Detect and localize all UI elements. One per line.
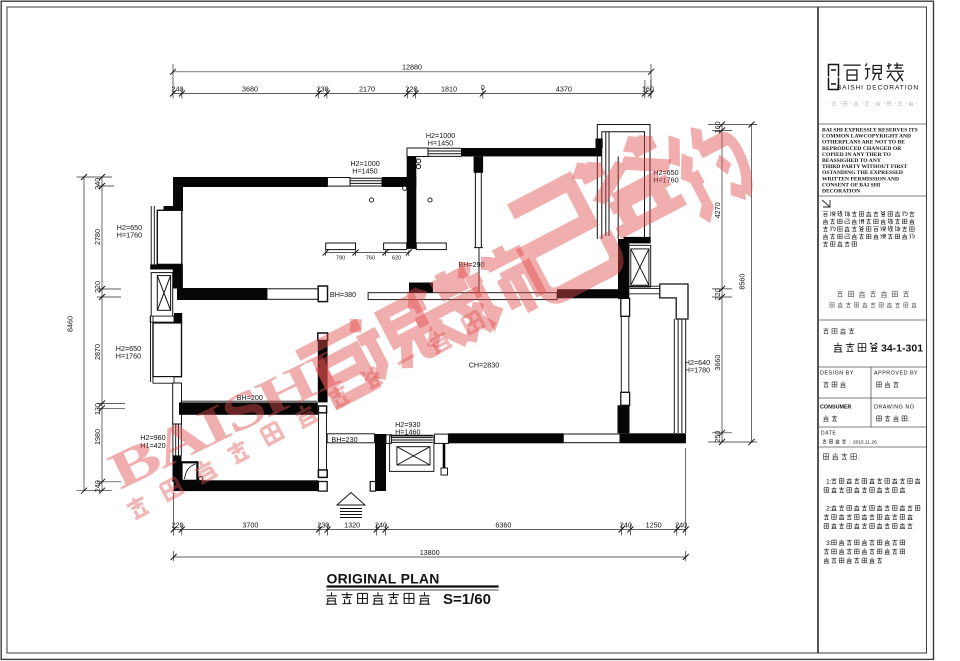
svg-text:BAI SHI EXPRESSLY RESERVES ITS: BAI SHI EXPRESSLY RESERVES ITS [822, 128, 918, 134]
svg-text:790: 790 [336, 256, 345, 262]
svg-text:4370: 4370 [556, 85, 572, 94]
svg-text:4270: 4270 [713, 202, 722, 218]
svg-text:S=1/60: S=1/60 [443, 591, 491, 608]
svg-text:H=1460: H=1460 [395, 427, 420, 436]
svg-text:160: 160 [642, 85, 654, 94]
svg-text:·: · [851, 101, 852, 106]
svg-text:OTHERPLANS ARE NOT TO BE: OTHERPLANS ARE NOT TO BE [822, 140, 905, 146]
svg-text:COPIED IN ANY THER TO: COPIED IN ANY THER TO [822, 152, 891, 158]
svg-text:COMMON LAWCOPYRIGHT AND: COMMON LAWCOPYRIGHT AND [822, 134, 911, 140]
svg-text:2:: 2: [826, 506, 832, 513]
svg-text:3700: 3700 [242, 521, 258, 530]
svg-text:·: · [829, 101, 830, 106]
svg-text:240: 240 [172, 85, 184, 94]
svg-text:H=1450: H=1450 [352, 167, 377, 176]
svg-text:1:: 1: [826, 479, 832, 486]
svg-text:WRITTEN PERMISSION AND: WRITTEN PERMISSION AND [822, 176, 899, 182]
svg-text:8460: 8460 [66, 316, 75, 332]
svg-text:6360: 6360 [495, 521, 511, 530]
svg-text:H=1780: H=1780 [685, 366, 710, 375]
svg-text:H=1760: H=1760 [117, 231, 142, 240]
svg-text:34-1-301: 34-1-301 [881, 343, 923, 355]
svg-text:BH=380: BH=380 [330, 290, 356, 299]
svg-text:620: 620 [392, 256, 401, 262]
svg-text:230: 230 [317, 521, 329, 530]
svg-text:220: 220 [172, 521, 184, 530]
svg-text:THIRD PARTY WITHOUT FIRST: THIRD PARTY WITHOUT FIRST [822, 164, 907, 170]
svg-text:1810: 1810 [441, 85, 457, 94]
svg-text:ORIGINAL PLAN: ORIGINAL PLAN [327, 571, 440, 587]
svg-text:CONSUMER: CONSUMER [820, 405, 852, 411]
svg-text:3680: 3680 [242, 85, 258, 94]
svg-text:0: 0 [481, 83, 485, 92]
svg-text:REPRODUCED CHANGED OR: REPRODUCED CHANGED OR [822, 146, 902, 152]
svg-text:2170: 2170 [359, 85, 375, 94]
svg-text:130: 130 [93, 403, 102, 415]
svg-text:240: 240 [675, 521, 687, 530]
svg-text:1250: 1250 [646, 521, 662, 530]
svg-text:: 2015.11.26: : 2015.11.26 [849, 440, 877, 446]
svg-text:DESIGN BY: DESIGN BY [820, 371, 854, 377]
svg-text:DRAWING NO: DRAWING NO [874, 405, 914, 411]
svg-text:·: · [895, 101, 896, 106]
svg-text:240: 240 [375, 521, 387, 530]
svg-text:2870: 2870 [93, 344, 102, 360]
svg-text:240: 240 [93, 178, 102, 190]
svg-text::: : [908, 417, 910, 423]
svg-text:3660: 3660 [713, 355, 722, 371]
svg-text:DATE: DATE [821, 431, 836, 437]
svg-text:240: 240 [620, 521, 632, 530]
svg-text:1980: 1980 [93, 429, 102, 445]
svg-text:2780: 2780 [93, 229, 102, 245]
svg-text:760: 760 [366, 256, 375, 262]
svg-text:H=1450: H=1450 [428, 139, 453, 148]
svg-text:·: · [840, 101, 841, 106]
svg-text:160: 160 [713, 121, 722, 133]
svg-text:BAISHI: BAISHI [100, 340, 348, 501]
svg-text:1320: 1320 [344, 521, 360, 530]
svg-text:·: · [916, 101, 917, 106]
svg-text:APPROVED BY: APPROVED BY [874, 371, 918, 377]
svg-text:220: 220 [93, 281, 102, 293]
svg-text:CONSENT OF BAI SHI: CONSENT OF BAI SHI [822, 182, 880, 188]
svg-text:230: 230 [317, 85, 329, 94]
svg-text:BH=230: BH=230 [331, 435, 357, 444]
svg-text:OSTANDING THE EXPRESSED: OSTANDING THE EXPRESSED [822, 170, 903, 176]
svg-text:H=1760: H=1760 [116, 352, 141, 361]
svg-text:BAISHI DECORATION: BAISHI DECORATION [837, 85, 919, 92]
svg-text:8560: 8560 [738, 274, 747, 290]
svg-text:220: 220 [406, 85, 418, 94]
svg-text:220: 220 [713, 288, 722, 300]
svg-text:240: 240 [93, 480, 102, 492]
svg-text:·: · [906, 101, 907, 106]
svg-text:DECORATION: DECORATION [822, 189, 860, 195]
svg-text:250: 250 [713, 431, 722, 443]
svg-text:·: · [884, 101, 885, 106]
svg-text:3:: 3: [826, 540, 832, 547]
svg-text:BEASSIGHED TO ANY: BEASSIGHED TO ANY [822, 158, 881, 164]
svg-text:13800: 13800 [420, 548, 440, 557]
svg-text:·: · [862, 101, 863, 106]
svg-text:·: · [873, 101, 874, 106]
svg-text:12880: 12880 [402, 63, 422, 72]
svg-text:CH=2830: CH=2830 [469, 361, 500, 370]
svg-text::: : [858, 455, 860, 462]
